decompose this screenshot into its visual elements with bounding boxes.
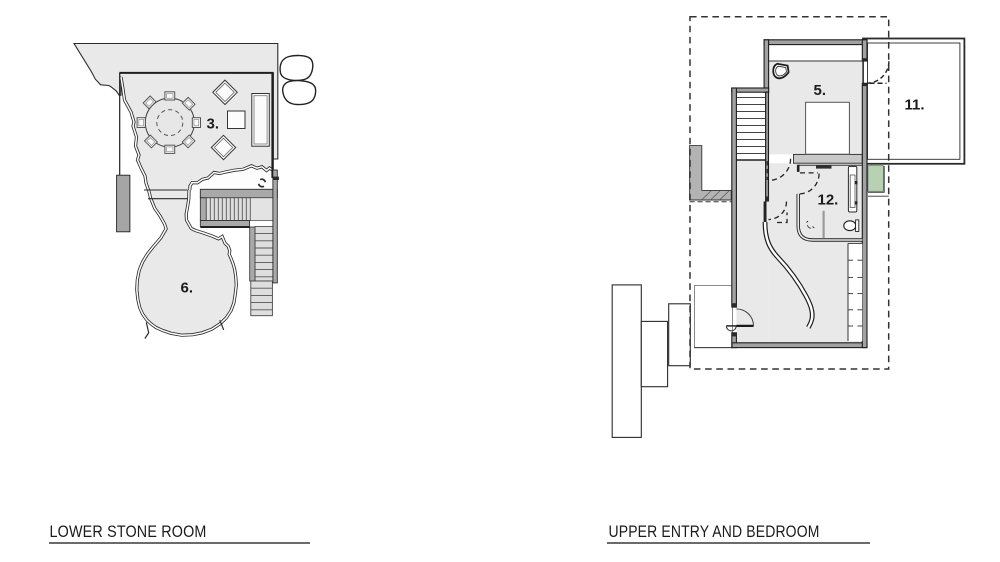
svg-text:11.: 11. [905,97,925,114]
svg-text:LOWER STONE ROOM: LOWER STONE ROOM [50,522,207,541]
svg-text:6.: 6. [181,280,194,297]
svg-text:UPPER ENTRY AND BEDROOM: UPPER ENTRY AND BEDROOM [609,522,820,541]
svg-text:12.: 12. [818,192,839,209]
svg-text:5.: 5. [814,82,827,99]
svg-text:3.: 3. [207,116,220,133]
